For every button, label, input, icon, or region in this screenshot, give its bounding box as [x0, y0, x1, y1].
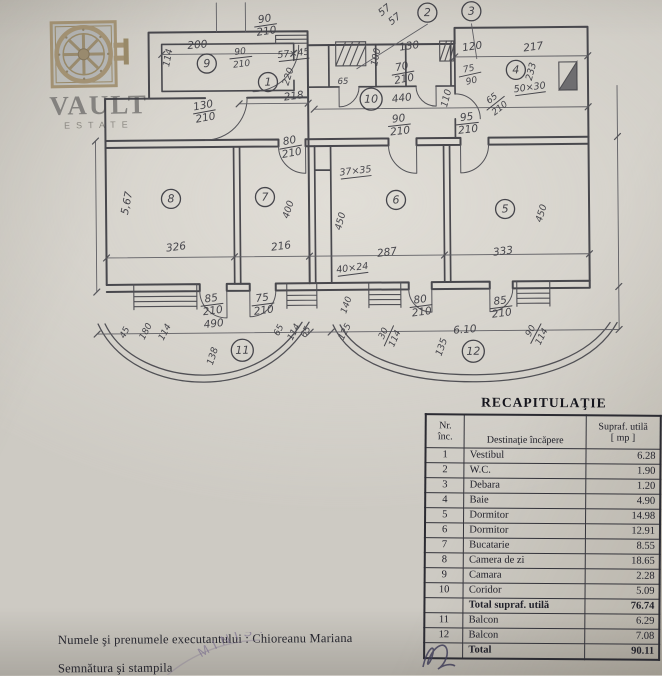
svg-text:210: 210	[393, 71, 415, 87]
svg-text:12: 12	[466, 345, 480, 358]
svg-text:10: 10	[364, 93, 378, 106]
cell-suprafata: 8.55	[585, 539, 660, 555]
svg-text:138: 138	[205, 346, 221, 367]
room-number: 6	[386, 190, 405, 209]
dimension-label: 110	[439, 88, 454, 108]
cell-suprafata: 6.29	[585, 614, 660, 630]
svg-text:50×30: 50×30	[513, 80, 546, 95]
dimension-label: 400	[281, 199, 297, 220]
dimension-label: 333	[492, 244, 513, 259]
dimension-label: 30114	[375, 322, 405, 351]
cell-nr: 2	[425, 463, 464, 478]
svg-text:216: 216	[270, 239, 292, 254]
svg-text:130: 130	[398, 39, 420, 54]
dimension-label: 90114	[522, 319, 552, 349]
svg-text:326: 326	[165, 240, 187, 255]
svg-text:114: 114	[157, 322, 174, 342]
cell-nr: 11	[424, 613, 463, 628]
cell-destinatie: Balcon	[463, 613, 585, 629]
svg-text:85: 85	[493, 294, 508, 308]
dimension-label: 450	[333, 211, 348, 231]
svg-text:210: 210	[195, 110, 217, 126]
svg-text:2: 2	[424, 6, 431, 19]
svg-text:1: 1	[264, 76, 271, 89]
cell-nr: 5	[425, 508, 464, 523]
svg-text:95: 95	[459, 111, 474, 124]
dimension-label: 233	[524, 61, 539, 81]
svg-text:233: 233	[524, 61, 539, 81]
svg-text:217: 217	[523, 40, 545, 55]
table-row: 8Camera de zi18.65	[425, 553, 660, 570]
svg-text:210: 210	[233, 59, 251, 71]
svg-text:6: 6	[392, 193, 399, 206]
dimension-label: 216	[270, 239, 292, 254]
svg-text:450: 450	[534, 203, 550, 224]
cell-suprafata: 5.09	[585, 584, 660, 600]
room-number: 8	[161, 189, 180, 208]
dimension-label: 80210	[409, 292, 434, 319]
svg-text:90: 90	[465, 75, 479, 87]
svg-text:45: 45	[118, 325, 132, 340]
table-row: 2W.C.1.90	[425, 463, 660, 480]
svg-text:90: 90	[391, 112, 406, 125]
svg-text:100: 100	[369, 47, 383, 67]
svg-text:440: 440	[391, 91, 413, 106]
dimension-label: 45	[118, 325, 132, 340]
dimension-label: 7590	[457, 62, 483, 89]
cell-destinatie: Camera de zi	[464, 553, 586, 569]
floor-plan-drawing: 2001149902109021057×45122021813021057572…	[0, 0, 662, 403]
dimension-label: 50×30	[513, 80, 546, 96]
room-number: 7	[255, 187, 274, 206]
cell-nr: 8	[425, 553, 464, 568]
table-row: 1Vestibul6.28	[425, 448, 660, 465]
svg-text:7: 7	[261, 191, 268, 204]
svg-text:40×24: 40×24	[336, 261, 369, 276]
cell-nr: 7	[425, 538, 464, 553]
dimension-label: 80210	[278, 133, 304, 161]
room-number: 10	[360, 88, 382, 110]
cell-nr: 1	[425, 448, 464, 463]
dimension-label: 95210	[455, 110, 480, 137]
dimension-label: 114	[161, 48, 175, 68]
dimension-label: 135	[434, 337, 450, 358]
dimension-label: 180	[138, 322, 155, 342]
cell-destinatie: Vestibul	[464, 448, 586, 464]
dimension-label: 450	[534, 203, 550, 224]
dimension-label: 130	[398, 39, 420, 54]
svg-text:200: 200	[187, 38, 208, 52]
room-number: 11	[231, 339, 253, 361]
room-number: 9	[197, 54, 216, 73]
recap-title: RECAPITULAŢIE	[425, 394, 662, 412]
svg-text:6.10: 6.10	[453, 323, 478, 337]
cell-suprafata: 2.28	[585, 569, 660, 585]
cell-suprafata: 1.20	[586, 479, 661, 495]
svg-text:5: 5	[502, 202, 509, 215]
svg-text:9: 9	[203, 57, 210, 70]
svg-text:287: 287	[376, 245, 398, 260]
cell-suprafata: 6.28	[586, 449, 661, 465]
table-row: 6Dormitor12.91	[425, 523, 660, 540]
dimension-label: 440	[391, 91, 413, 106]
dimension-label: 100	[369, 47, 383, 67]
svg-text:490: 490	[203, 317, 225, 331]
dimension-label: 5,67	[119, 190, 135, 216]
col-header-dest: Destinaţie încăpere	[464, 414, 586, 448]
recap-section: RECAPITULAŢIE Nr. înc. Destinaţie încăpe…	[423, 394, 662, 661]
table-row: 9Camara2.28	[425, 568, 660, 585]
scanned-document: { "watermark": { "brand": "VAULT", "sub"…	[0, 0, 662, 675]
svg-text:114: 114	[161, 48, 175, 68]
table-row: Total supraf. utilă76.74	[424, 598, 659, 615]
svg-text:210: 210	[281, 145, 303, 161]
svg-text:135: 135	[434, 337, 450, 358]
dimension-label: 65	[272, 323, 286, 338]
dimension-label: 57×45	[277, 47, 310, 62]
signature-scribble	[413, 637, 483, 675]
dimension-label: 75210	[250, 291, 275, 318]
svg-text:180: 180	[138, 322, 155, 342]
cell-nr: 10	[425, 583, 464, 598]
cell-destinatie: W.C.	[464, 463, 586, 479]
dimension-label: 37×35	[339, 164, 372, 179]
dimension-label: 217	[523, 40, 545, 55]
svg-text:450: 450	[333, 211, 348, 231]
cell-destinatie: Debara	[464, 478, 586, 494]
stamp-arc-text: MINISTRA	[195, 632, 298, 660]
svg-text:333: 333	[492, 244, 513, 259]
cell-nr: 6	[425, 523, 464, 538]
svg-text:400: 400	[281, 199, 297, 220]
svg-text:120: 120	[461, 39, 483, 54]
cell-destinatie: Coridor	[463, 583, 585, 599]
dimension-label: 114	[157, 322, 174, 342]
dimension-label: 70210	[390, 59, 416, 87]
cell-destinatie: Bucatarie	[464, 538, 586, 554]
room-number: 2	[418, 3, 437, 22]
cell-destinatie: Camara	[463, 568, 585, 584]
cell-destinatie: Baie	[464, 493, 586, 509]
table-row: 10Coridor5.09	[425, 583, 660, 600]
cell-destinatie: Dormitor	[464, 508, 586, 524]
cell-suprafata: 4.90	[586, 494, 661, 510]
col-header-nr: Nr. înc.	[426, 414, 465, 448]
dimension-label: 65	[338, 77, 349, 87]
svg-text:8: 8	[167, 192, 174, 205]
cell-suprafata: 7.08	[585, 629, 660, 645]
svg-text:4: 4	[512, 63, 519, 76]
plan-labels: 2001149902109021057×45122021813021057572…	[115, 0, 552, 367]
col-header-supraf: Supraf. utilă [ mp ]	[586, 415, 661, 449]
table-row: 5Dormitor14.98	[425, 508, 660, 525]
cell-nr: 3	[425, 478, 464, 493]
cell-destinatie: Dormitor	[464, 523, 586, 539]
svg-text:218: 218	[283, 89, 305, 104]
table-row: 11Balcon6.29	[424, 613, 659, 630]
table-row: 4Baie4.90	[425, 493, 660, 510]
room-number: 3	[462, 2, 481, 21]
svg-text:85: 85	[204, 292, 219, 306]
cell-suprafata: 18.65	[585, 554, 660, 570]
cell-suprafata: 14.98	[585, 509, 660, 525]
dimension-label: 490	[203, 317, 225, 331]
cell-suprafata: 90.11	[584, 644, 659, 660]
dimension-label: 140	[339, 295, 354, 315]
table-row: 3Debara1.20	[425, 478, 660, 495]
room-number: 5	[496, 199, 515, 218]
room-number: 12	[462, 340, 484, 362]
dimension-label: 40×24	[336, 261, 369, 277]
cell-nr: 4	[425, 493, 464, 508]
dimension-label: 90210	[229, 46, 253, 71]
svg-text:80: 80	[413, 293, 428, 307]
svg-text:140: 140	[339, 295, 354, 315]
dimension-label: 130210	[191, 98, 217, 126]
svg-text:65: 65	[338, 77, 349, 87]
svg-text:65: 65	[272, 323, 286, 338]
svg-text:90: 90	[234, 47, 247, 58]
dimension-label: 90210	[253, 12, 278, 39]
recap-table: Nr. înc. Destinaţie încăpere Supraf. uti…	[423, 413, 662, 661]
dimension-label: 326	[165, 240, 187, 255]
dimension-label: 138	[205, 346, 221, 367]
cell-destinatie: Total supraf. utilă	[463, 598, 585, 614]
cell-nr: 9	[425, 568, 464, 583]
dimension-label: 85210	[489, 294, 514, 321]
svg-text:75: 75	[255, 291, 270, 305]
cell-suprafata: 76.74	[585, 599, 660, 615]
dimension-label: 287	[376, 245, 398, 260]
dimension-label: 65210	[481, 88, 512, 119]
dimension-label: 90210	[387, 112, 412, 139]
dimension-label: 120	[461, 39, 483, 54]
cell-suprafata: 1.90	[586, 464, 661, 480]
svg-text:3: 3	[468, 5, 475, 18]
cell-suprafata: 12.91	[585, 524, 660, 540]
svg-text:11: 11	[235, 344, 249, 357]
table-row: 7Bucatarie8.55	[425, 538, 660, 555]
room-number: 4	[506, 60, 525, 79]
svg-text:5,67: 5,67	[119, 190, 135, 216]
cell-nr	[424, 598, 463, 613]
recap-header-row: Nr. înc. Destinaţie încăpere Supraf. uti…	[426, 414, 661, 449]
dimension-label: 6.10	[453, 323, 478, 337]
dimension-label: 218	[283, 89, 305, 104]
dimension-label: 200	[187, 38, 208, 52]
svg-text:110: 110	[439, 88, 454, 108]
round-stamp: MINISTRA	[150, 632, 390, 675]
